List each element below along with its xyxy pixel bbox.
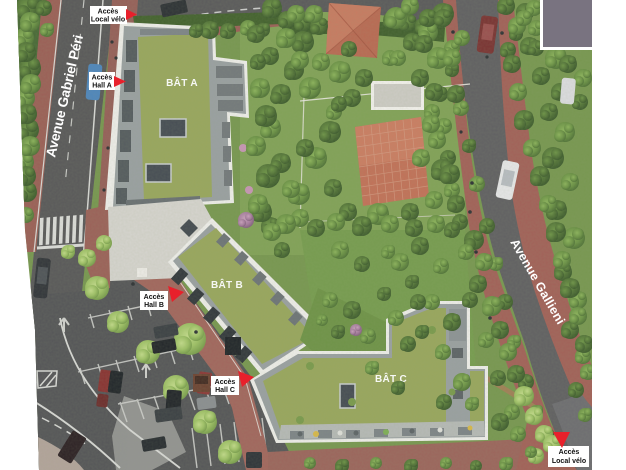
svg-text:Accès: Accès [92, 75, 113, 82]
svg-text:Local vélo: Local vélo [552, 458, 586, 465]
svg-text:Accès: Accès [144, 294, 165, 301]
svg-text:Hall B: Hall B [144, 302, 164, 309]
svg-text:Local vélo: Local vélo [91, 17, 125, 24]
svg-text:Accès: Accès [215, 379, 236, 386]
svg-text:Hall C: Hall C [215, 387, 235, 394]
svg-text:Accès: Accès [98, 9, 119, 16]
svg-text:Hall A: Hall A [92, 83, 112, 90]
svg-text:Accès: Accès [559, 449, 580, 456]
